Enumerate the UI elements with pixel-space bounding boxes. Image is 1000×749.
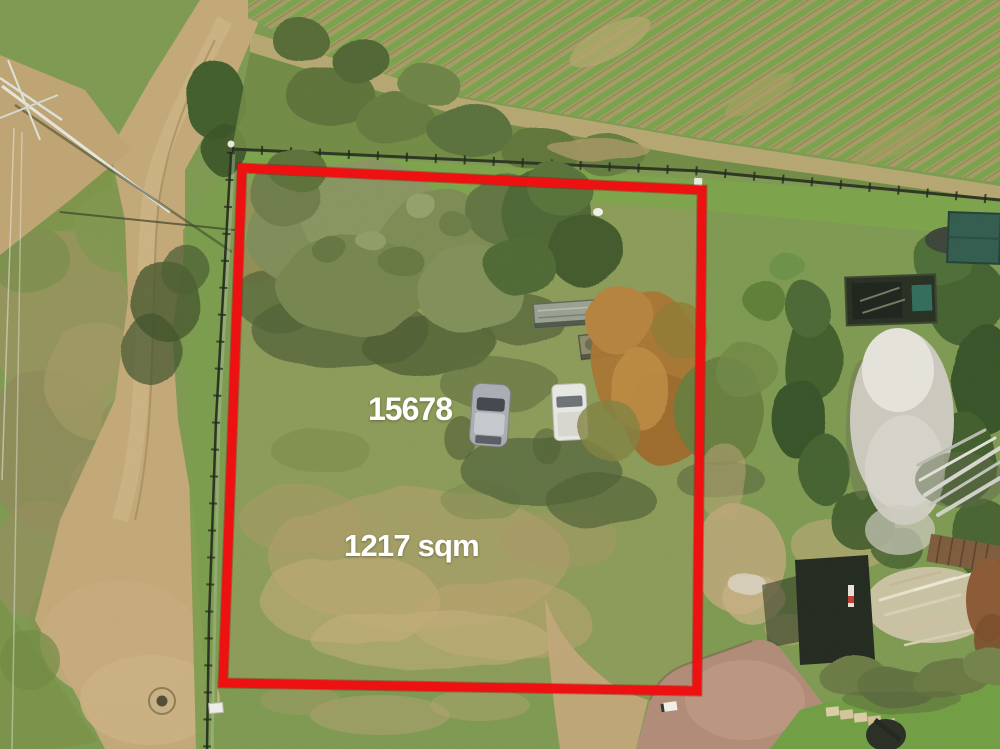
area-label: 1217 sqm: [344, 528, 479, 563]
aerial-parcel-photo: 15678 1217 sqm: [0, 0, 1000, 749]
aerial-photo-canvas: 15678 1217 sqm: [0, 0, 1000, 749]
lot-number-label: 15678: [368, 391, 452, 427]
photo-grain: [0, 0, 1000, 749]
